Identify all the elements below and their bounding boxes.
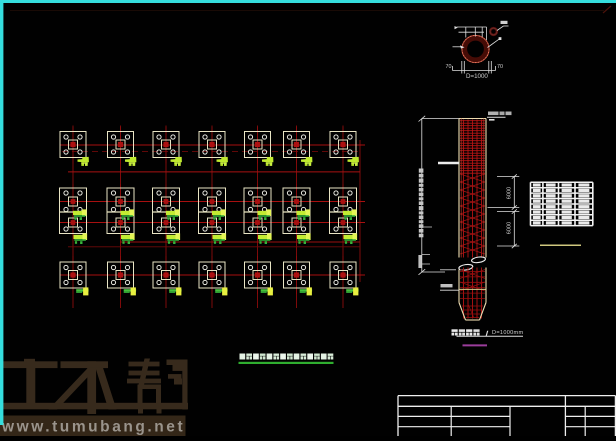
svg-text:D=1000mm: D=1000mm — [492, 330, 524, 336]
svg-text:70: 70 — [446, 64, 452, 70]
svg-text:D=1000: D=1000 — [466, 73, 488, 80]
svg-text:6000: 6000 — [507, 187, 513, 199]
svg-text:www.tumubang.net: www.tumubang.net — [1, 419, 185, 436]
svg-text:6000: 6000 — [507, 222, 513, 234]
svg-text:70: 70 — [497, 64, 503, 70]
